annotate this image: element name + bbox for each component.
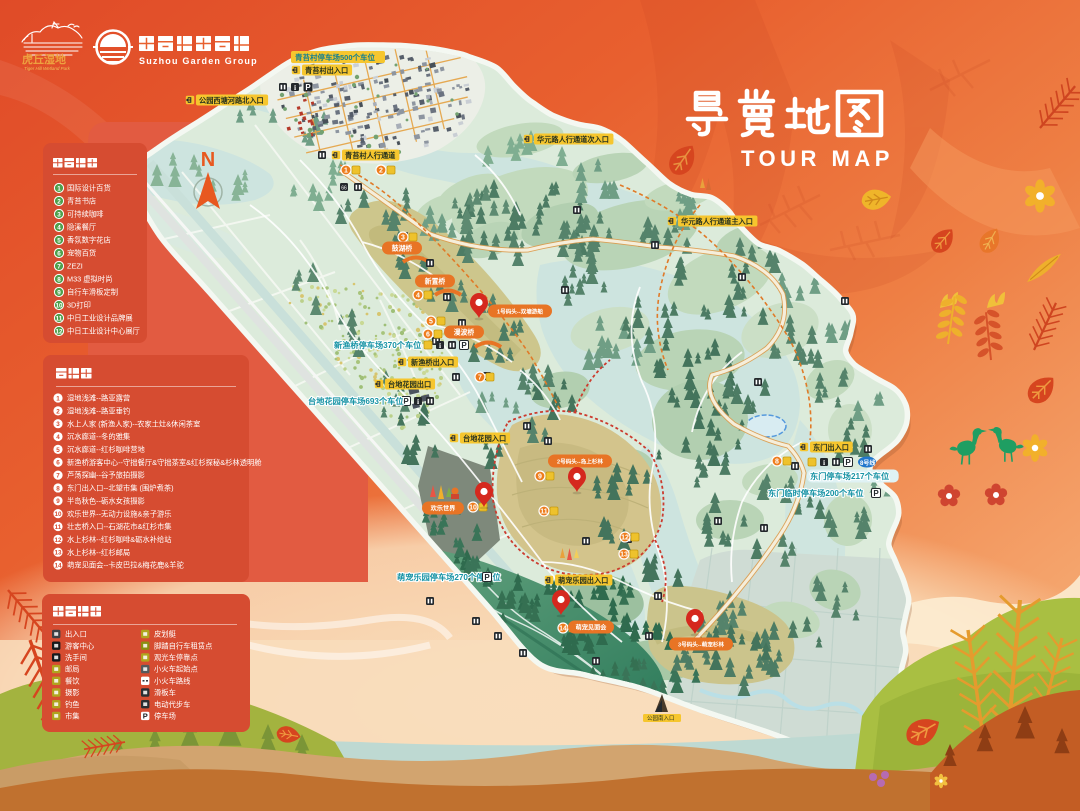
svg-text:湿地浅滩--路亚垂钓: 湿地浅滩--路亚垂钓: [67, 406, 130, 415]
svg-text:5: 5: [429, 319, 433, 326]
svg-text:小火车路线: 小火车路线: [154, 676, 191, 685]
svg-text:8号线: 8号线: [860, 459, 875, 467]
svg-text:Tiger Hill Wetland Park: Tiger Hill Wetland Park: [24, 66, 71, 71]
svg-text:华元路人行通道主入口: 华元路人行通道主入口: [681, 217, 753, 226]
svg-text:东门出入口--北望市集 (围炉煮茶): 东门出入口--北望市集 (围炉煮茶): [67, 484, 174, 493]
svg-text:3: 3: [401, 235, 405, 242]
svg-text:6: 6: [426, 332, 430, 339]
svg-text:ZEZI: ZEZI: [67, 262, 83, 271]
svg-text:邮局: 邮局: [65, 665, 80, 674]
svg-text:摄影: 摄影: [65, 688, 80, 697]
svg-text:洗手间: 洗手间: [65, 653, 87, 662]
svg-text:1: 1: [344, 168, 348, 175]
svg-text:青苔村停车场500个车位: 青苔村停车场500个车位: [295, 52, 376, 62]
svg-text:13: 13: [54, 550, 62, 557]
svg-text:2: 2: [57, 198, 61, 205]
svg-text:小火车起始点: 小火车起始点: [154, 665, 198, 674]
svg-text:11: 11: [540, 509, 548, 516]
svg-text:i: i: [294, 83, 296, 92]
svg-text:水上杉林--红杉咖啡&砺水补给站: 水上杉林--红杉咖啡&砺水补给站: [67, 535, 172, 544]
svg-text:停车场: 停车场: [154, 712, 176, 721]
svg-text:自行车滑板定制: 自行车滑板定制: [67, 288, 118, 297]
svg-text:壮志桥入口--石湖花市&红杉市集: 壮志桥入口--石湖花市&红杉市集: [67, 522, 172, 531]
svg-text:7: 7: [56, 473, 60, 480]
svg-text:4: 4: [56, 434, 60, 441]
svg-text:12: 12: [55, 328, 63, 335]
svg-text:中日工业设计中心展厅: 中日工业设计中心展厅: [67, 327, 140, 336]
svg-text:欢乐世界--无动力设施&亲子游乐: 欢乐世界--无动力设施&亲子游乐: [67, 509, 172, 518]
svg-text:10: 10: [55, 302, 63, 309]
svg-text:M33 虚拟时尚: M33 虚拟时尚: [67, 275, 112, 284]
svg-text:14: 14: [559, 626, 567, 633]
svg-text:3: 3: [56, 421, 60, 428]
svg-text:萌宠乐园出入口: 萌宠乐园出入口: [558, 576, 608, 585]
svg-text:沉水廊道--红杉咖啡营地: 沉水廊道--红杉咖啡营地: [67, 445, 146, 454]
svg-text:隐溪餐厅: 隐溪餐厅: [67, 223, 96, 232]
svg-text:8: 8: [56, 485, 60, 492]
svg-text:P: P: [873, 489, 879, 498]
svg-text:4: 4: [416, 293, 420, 300]
svg-text:9: 9: [56, 498, 60, 505]
svg-text:鼓湖桥: 鼓湖桥: [392, 244, 413, 253]
svg-text:P: P: [461, 341, 467, 350]
svg-text:钓鱼: 钓鱼: [65, 700, 80, 709]
svg-text:11: 11: [55, 524, 62, 531]
svg-text:8: 8: [775, 459, 779, 466]
svg-text:TOUR MAP: TOUR MAP: [741, 146, 894, 171]
svg-text:台地花园入口: 台地花园入口: [463, 434, 506, 443]
svg-text:5: 5: [56, 447, 60, 454]
svg-text:虎丘湿地: 虎丘湿地: [22, 52, 66, 66]
svg-text:市集: 市集: [65, 712, 80, 721]
svg-text:9: 9: [57, 289, 61, 296]
svg-text:6: 6: [56, 460, 60, 467]
svg-text:东门临时停车场200个车位: 东门临时停车场200个车位: [768, 488, 864, 498]
svg-text:新渔桥停车场370个车位: 新渔桥停车场370个车位: [334, 340, 421, 350]
svg-text:4: 4: [57, 224, 61, 231]
svg-text:漫波桥: 漫波桥: [454, 328, 475, 337]
svg-text:3: 3: [57, 211, 61, 218]
svg-text:12: 12: [621, 535, 629, 542]
svg-text:9: 9: [538, 474, 542, 481]
svg-text:东门出入口: 东门出入口: [813, 443, 849, 452]
svg-text:Suzhou Garden Group: Suzhou Garden Group: [139, 56, 258, 66]
svg-text:东门停车场217个车位: 东门停车场217个车位: [810, 471, 889, 481]
svg-text:7: 7: [478, 375, 482, 382]
svg-text:10: 10: [54, 511, 62, 518]
svg-text:芦荡探幽--谷予旅拍摄影: 芦荡探幽--谷予旅拍摄影: [67, 471, 146, 480]
svg-text:N: N: [201, 149, 215, 171]
svg-text:青苔村出入口: 青苔村出入口: [305, 66, 348, 75]
svg-text:滑板车: 滑板车: [154, 688, 176, 697]
svg-text:水上人家 (新渔人家)--农家土灶&休闲茶室: 水上人家 (新渔人家)--农家土灶&休闲茶室: [67, 419, 200, 428]
svg-text:P: P: [305, 83, 311, 92]
svg-text:新渔桥游客中心--守拙餐厅&守拙茶室&红杉探秘&杉林透明舱: 新渔桥游客中心--守拙餐厅&守拙茶室&红杉探秘&杉林透明舱: [67, 458, 262, 467]
svg-text:萌宠见面会: 萌宠见面会: [576, 624, 608, 632]
svg-text:2号码头--岛上杉林: 2号码头--岛上杉林: [557, 458, 603, 466]
svg-text:湿地浅滩--路亚露营: 湿地浅滩--路亚露营: [67, 394, 130, 403]
svg-text:1号码头--双塘游船: 1号码头--双塘游船: [497, 308, 543, 316]
svg-text:香氛数字花店: 香氛数字花店: [67, 236, 111, 245]
svg-text:8: 8: [57, 276, 61, 283]
svg-text:11: 11: [56, 315, 63, 322]
svg-text:7: 7: [57, 263, 61, 270]
svg-text:1: 1: [57, 185, 61, 192]
svg-text:华元路人行通道次入口: 华元路人行通道次入口: [537, 135, 609, 144]
svg-text:出入口: 出入口: [65, 630, 87, 639]
svg-text:餐饮: 餐饮: [65, 676, 80, 685]
svg-text:12: 12: [54, 537, 62, 544]
svg-text:水上杉林--红杉邮局: 水上杉林--红杉邮局: [67, 548, 130, 557]
svg-text:中日工业设计品牌展: 中日工业设计品牌展: [67, 314, 133, 323]
svg-text:台地花园停车场693个车位: 台地花园停车场693个车位: [308, 396, 404, 406]
svg-text:P: P: [845, 458, 851, 467]
svg-text:台地花园出口: 台地花园出口: [388, 380, 431, 389]
svg-text:i: i: [439, 341, 441, 350]
svg-text:66: 66: [341, 186, 347, 192]
svg-text:欢乐世界: 欢乐世界: [430, 505, 457, 513]
svg-text:P: P: [403, 397, 409, 406]
svg-text:半岛秋色--砺水女孩摄影: 半岛秋色--砺水女孩摄影: [67, 496, 146, 505]
svg-text:13: 13: [620, 552, 628, 559]
svg-text:1: 1: [56, 395, 60, 402]
svg-text:5: 5: [57, 237, 61, 244]
svg-text:10: 10: [469, 505, 477, 512]
svg-text:脚踏自行车租赁点: 脚踏自行车租赁点: [154, 641, 212, 650]
svg-text:电动代步车: 电动代步车: [154, 700, 190, 709]
svg-text:i: i: [417, 397, 419, 406]
svg-text:宠物百货: 宠物百货: [67, 249, 96, 258]
svg-text:皮划艇: 皮划艇: [154, 630, 177, 639]
svg-text:P: P: [143, 712, 148, 721]
svg-text:新渔桥出入口: 新渔桥出入口: [411, 358, 454, 367]
svg-text:可持续咖啡: 可持续咖啡: [67, 210, 104, 219]
svg-text:3号码头--萌宠杉林: 3号码头--萌宠杉林: [678, 641, 724, 649]
svg-text:2: 2: [379, 168, 383, 175]
svg-text:萌宠见面会--卡皮巴拉&梅花鹿&羊驼: 萌宠见面会--卡皮巴拉&梅花鹿&羊驼: [67, 561, 184, 570]
svg-text:P: P: [484, 573, 490, 582]
svg-text:国际设计百货: 国际设计百货: [67, 184, 111, 193]
svg-text:公园南入口: 公园南入口: [647, 714, 675, 722]
svg-text:3D打印: 3D打印: [67, 301, 91, 310]
svg-text:公园西塘河路北入口: 公园西塘河路北入口: [199, 96, 264, 105]
svg-text:青苔村人行通道: 青苔村人行通道: [345, 151, 396, 160]
svg-text:青苔书店: 青苔书店: [67, 197, 96, 206]
svg-text:6: 6: [57, 250, 61, 257]
svg-text:游客中心: 游客中心: [65, 641, 95, 650]
svg-text:新置桥: 新置桥: [425, 277, 446, 286]
svg-text:2: 2: [56, 408, 60, 415]
svg-text:观光车停靠点: 观光车停靠点: [154, 653, 198, 662]
svg-text:沉水廊道--冬的雅集: 沉水廊道--冬的雅集: [67, 432, 131, 441]
svg-text:14: 14: [54, 562, 62, 569]
svg-text:i: i: [823, 458, 825, 467]
